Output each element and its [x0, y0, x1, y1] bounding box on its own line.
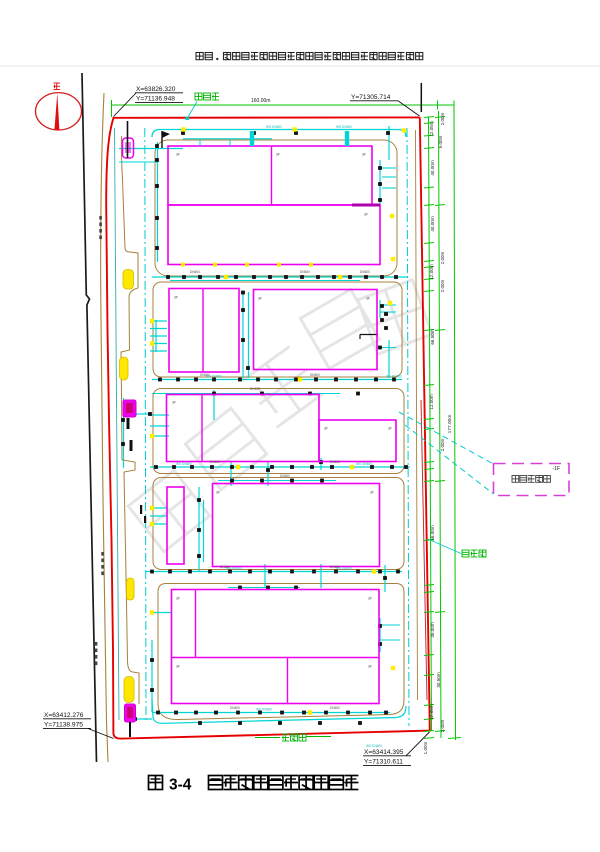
svg-text:Y=71310.611: Y=71310.611 [364, 759, 403, 766]
svg-text:WS DN600: WS DN600 [366, 744, 382, 748]
svg-text:3F: 3F [362, 153, 366, 157]
svg-text:WS DN600: WS DN600 [356, 462, 372, 466]
svg-text:5.00m: 5.00m [438, 135, 443, 148]
svg-text:3F: 3F [366, 297, 370, 301]
svg-text:X=63826.320: X=63826.320 [136, 86, 176, 93]
svg-text:2.00m: 2.00m [440, 279, 445, 292]
svg-text:3F: 3F [258, 297, 262, 301]
svg-text:66.50m: 66.50m [430, 329, 435, 344]
svg-text:-1F: -1F [553, 466, 561, 472]
svg-text:DN600: DN600 [310, 373, 320, 377]
svg-text:12.00m: 12.00m [429, 394, 434, 409]
svg-text:12.05m: 12.05m [429, 704, 434, 719]
svg-text:Y=71138.975: Y=71138.975 [44, 722, 83, 729]
svg-text:160.00m: 160.00m [251, 98, 270, 104]
svg-text:DN600: DN600 [280, 474, 290, 478]
svg-text:DN600: DN600 [300, 270, 310, 274]
svg-text:3F: 3F [176, 597, 180, 601]
svg-text:3F: 3F [368, 597, 372, 601]
svg-text:177.00m: 177.00m [447, 415, 453, 434]
svg-text:X=63414.395: X=63414.395 [364, 749, 404, 756]
svg-text:Y=71305.714: Y=71305.714 [351, 94, 391, 101]
svg-text:DN600: DN600 [190, 270, 200, 274]
svg-text:40.00m: 40.00m [430, 216, 435, 231]
svg-text:X=63412.276: X=63412.276 [44, 712, 84, 719]
svg-text:2.00m: 2.00m [440, 719, 445, 732]
svg-text:3F: 3F [276, 153, 280, 157]
svg-text:3F: 3F [176, 153, 180, 157]
svg-text:3F: 3F [368, 665, 372, 669]
svg-text:3F: 3F [176, 665, 180, 669]
svg-text:DN600: DN600 [210, 460, 220, 464]
svg-text:WS DN600: WS DN600 [256, 708, 272, 712]
svg-text:Y=71136.948: Y=71136.948 [136, 96, 175, 103]
svg-text:2.00m: 2.00m [440, 438, 445, 451]
svg-text:DN600: DN600 [250, 387, 260, 391]
svg-text:DN600: DN600 [220, 565, 230, 569]
svg-text:56.00m: 56.00m [430, 525, 435, 540]
svg-text:3F: 3F [324, 427, 328, 431]
svg-text:2.00m: 2.00m [440, 112, 445, 125]
svg-text:1.00m: 1.00m [423, 741, 428, 754]
svg-text:DN600: DN600 [360, 270, 370, 274]
svg-text:3F: 3F [364, 213, 368, 217]
svg-text:DN600: DN600 [330, 706, 340, 710]
svg-text:WS DN600: WS DN600 [386, 375, 402, 379]
svg-text:40.00m: 40.00m [430, 160, 435, 175]
svg-text:WS DN600: WS DN600 [336, 125, 352, 129]
svg-text:DN600: DN600 [330, 460, 340, 464]
svg-text:3F: 3F [174, 296, 178, 300]
svg-text:30.50m: 30.50m [436, 672, 441, 687]
svg-text:WS DN600: WS DN600 [266, 125, 282, 129]
svg-text:DN600: DN600 [330, 565, 340, 569]
svg-text:DN600: DN600 [200, 373, 210, 377]
svg-text:WS DN600: WS DN600 [176, 462, 192, 466]
svg-text:12.05m: 12.05m [429, 121, 434, 136]
svg-text:12.00m: 12.00m [429, 264, 434, 279]
svg-text:DN600: DN600 [230, 706, 240, 710]
svg-text:3F: 3F [388, 427, 392, 431]
svg-text:2.00m: 2.00m [440, 251, 445, 264]
svg-text:3F: 3F [370, 491, 374, 495]
svg-text:45.00m: 45.00m [430, 622, 435, 637]
svg-text:3F: 3F [172, 401, 176, 405]
svg-text:3F: 3F [216, 491, 220, 495]
svg-text:3-4: 3-4 [169, 777, 192, 794]
